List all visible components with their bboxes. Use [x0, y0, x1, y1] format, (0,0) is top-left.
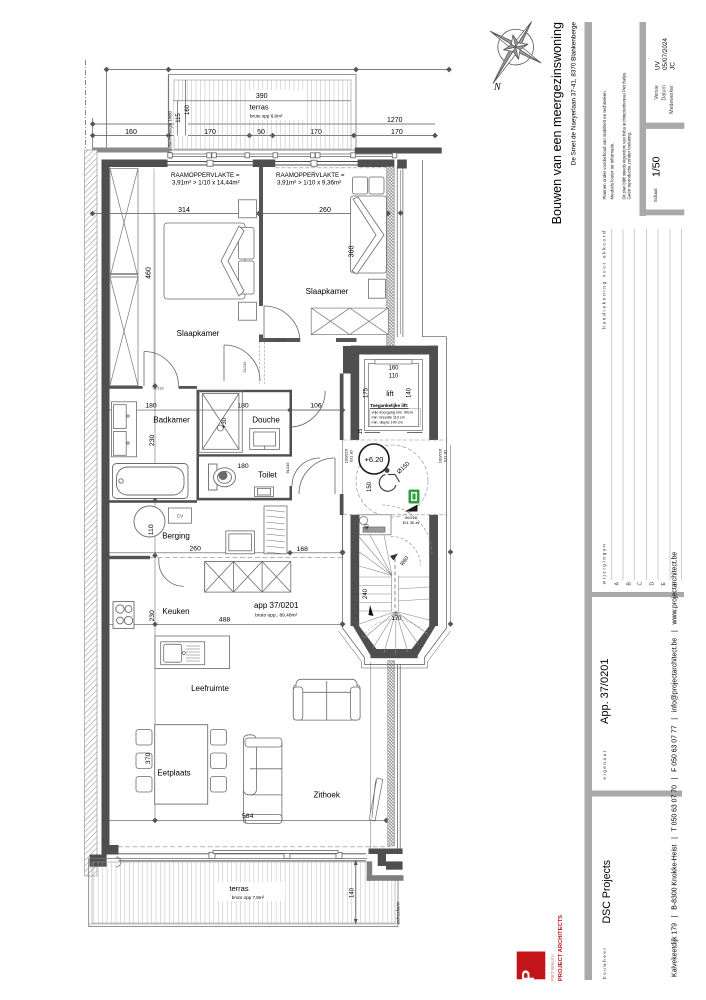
svg-text:160: 160	[185, 104, 191, 115]
svg-text:bruto opp 6,6m²: bruto opp 6,6m²	[250, 114, 283, 119]
svg-text:UV: UV	[655, 60, 662, 70]
svg-text:DSC Projects: DSC Projects	[601, 860, 613, 924]
svg-text:370: 370	[145, 753, 152, 765]
svg-text:584: 584	[242, 813, 254, 820]
svg-text:RAAMOPPERVLAKTE =: RAAMOPPERVLAKTE =	[171, 172, 240, 179]
svg-text:170: 170	[391, 129, 403, 136]
svg-text:Toilet: Toilet	[258, 471, 277, 480]
svg-text:De Smet de Naeyerlaan 37-41, 8: De Smet de Naeyerlaan 37-41, 8370 Blanke…	[571, 22, 578, 166]
svg-text:app 37/0201: app 37/0201	[254, 601, 299, 610]
svg-text:min. diepte 140 cm: min. diepte 140 cm	[372, 420, 403, 424]
svg-text:140: 140	[350, 887, 356, 898]
svg-text:1270: 1270	[387, 117, 403, 124]
svg-text:170: 170	[391, 616, 402, 622]
svg-text:3,91m² > 1/10 x 9,36m²: 3,91m² > 1/10 x 9,36m²	[277, 179, 341, 186]
svg-text:115: 115	[176, 113, 182, 123]
svg-text:91/216: 91/216	[243, 362, 247, 373]
svg-text:168: 168	[297, 546, 309, 553]
svg-text:JC: JC	[670, 62, 677, 70]
svg-text:Geen reproductie zonder toelat: Geen reproductie zonder toelating.	[626, 132, 631, 200]
svg-text:110: 110	[148, 524, 155, 535]
svg-text:Keuken: Keuken	[162, 607, 189, 616]
svg-text:15: 15	[358, 429, 364, 435]
svg-text:handtekening voor akkoord: handtekening voor akkoord	[602, 229, 607, 328]
svg-text:230: 230	[149, 610, 156, 622]
svg-text:+6.20: +6.20	[365, 455, 384, 464]
svg-text:240: 240	[363, 588, 369, 599]
svg-text:260: 260	[319, 207, 331, 214]
svg-text:RAAMOPPERVLAKTE =: RAAMOPPERVLAKTE =	[276, 172, 345, 179]
svg-text:Zithoek: Zithoek	[314, 791, 341, 800]
svg-text:Leefruimte: Leefruimte	[191, 684, 229, 693]
svg-text:230: 230	[149, 435, 156, 447]
svg-text:eigenaar: eigenaar	[602, 749, 607, 779]
svg-text:App. 37/0201: App. 37/0201	[599, 659, 611, 724]
svg-text:P: P	[518, 970, 538, 982]
svg-text:+30: +30	[222, 417, 228, 428]
svg-text:CV: CV	[177, 514, 183, 519]
svg-text:Douche: Douche	[252, 415, 280, 424]
svg-text:390: 390	[256, 93, 268, 100]
svg-text:488: 488	[219, 616, 231, 623]
svg-text:91/216: 91/216	[286, 463, 290, 474]
svg-text:EI1 30: EI1 30	[349, 449, 354, 461]
svg-text:150: 150	[367, 481, 373, 492]
svg-text:Toegankelijke lift:: Toegankelijke lift:	[370, 403, 409, 408]
svg-text:Kalvekeetdijk 179 | B-8300: Kalvekeetdijk 179 | B-8300 Knokke-Heist …	[672, 552, 679, 977]
svg-text:C: C	[638, 582, 644, 586]
svg-text:40: 40	[365, 524, 371, 530]
svg-text:160: 160	[125, 129, 137, 136]
svg-text:Schaal: Schaal	[653, 189, 658, 203]
svg-text:bruto opp 7,8m²: bruto opp 7,8m²	[232, 895, 265, 900]
svg-text:bruto opp.: 89,48m²: bruto opp.: 89,48m²	[255, 613, 297, 619]
svg-text:05/07/2024: 05/07/2024	[662, 38, 669, 70]
svg-text:D: D	[650, 582, 656, 586]
svg-text:terras: terras	[229, 884, 248, 893]
svg-text:91/216: 91/216	[276, 339, 287, 343]
svg-text:bouwheer: bouwheer	[602, 946, 607, 979]
svg-text:terras: terras	[250, 103, 269, 112]
svg-text:wijzigingen: wijzigingen	[602, 542, 607, 584]
svg-text:91/216: 91/216	[153, 387, 164, 391]
svg-text:min. breedte 110 cm: min. breedte 110 cm	[372, 415, 405, 419]
svg-text:Eetplaats: Eetplaats	[157, 769, 190, 778]
svg-text:vrije doorgang min. 90cm: vrije doorgang min. 90cm	[372, 410, 413, 414]
svg-text:3,91m² > 1/10 x 14,44m²: 3,91m² > 1/10 x 14,44m²	[172, 179, 240, 186]
svg-text:Plannen onder voorbehoud van s: Plannen onder voorbehoud van stabiliteit…	[602, 90, 607, 199]
svg-text:Badkamer: Badkamer	[153, 415, 190, 424]
svg-text:Medewerker: Medewerker	[669, 85, 675, 114]
svg-text:N: N	[493, 82, 502, 93]
svg-text:460: 460	[146, 267, 153, 279]
svg-text:314: 314	[178, 207, 190, 214]
svg-text:Berging: Berging	[162, 532, 190, 541]
svg-text:140: 140	[407, 387, 413, 398]
svg-text:260: 260	[190, 545, 202, 552]
svg-text:Datum: Datum	[662, 85, 668, 100]
svg-text:Slaapkamer: Slaapkamer	[306, 287, 349, 296]
svg-text:160: 160	[388, 365, 399, 371]
svg-text:Slaapkamer: Slaapkamer	[177, 329, 220, 338]
svg-text:110: 110	[389, 373, 399, 379]
svg-text:180: 180	[237, 463, 249, 470]
svg-text:PIET BAILYU: PIET BAILYU	[550, 954, 555, 981]
svg-text:180: 180	[145, 403, 157, 410]
svg-text:Meubels louter ter informatie.: Meubels louter ter informatie.	[610, 143, 615, 200]
svg-text:1/50: 1/50	[651, 156, 663, 177]
svg-text:PROJECT ARCHITECTS: PROJECT ARCHITECTS	[558, 915, 564, 981]
svg-text:lift: lift	[386, 389, 394, 398]
svg-text:EI1 30 zs: EI1 30 zs	[403, 520, 420, 525]
svg-text:360: 360	[349, 246, 356, 258]
svg-text:Versie: Versie	[654, 85, 660, 100]
svg-text:Bouwen van een meergezinswonin: Bouwen van een meergezinswoning	[550, 22, 564, 224]
svg-text:zichtscherm: zichtscherm	[396, 901, 401, 924]
svg-text:175: 175	[364, 387, 370, 398]
